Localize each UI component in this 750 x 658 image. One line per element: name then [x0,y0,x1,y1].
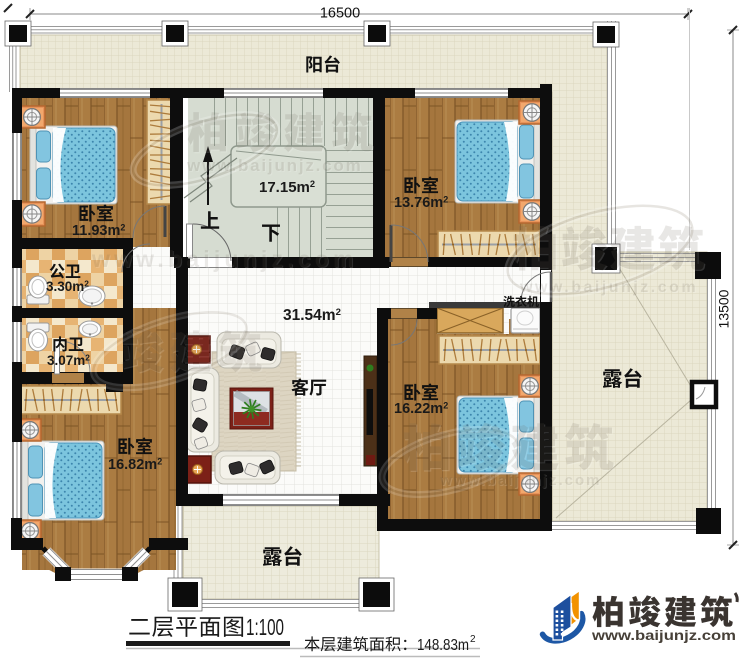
svg-text:www.baijunjz.com: www.baijunjz.com [439,472,601,489]
svg-text:2: 2 [470,634,476,645]
svg-text:13500: 13500 [716,289,732,328]
svg-text:31.54m2: 31.54m2 [283,307,341,324]
svg-text:www.baijunjz.com: www.baijunjz.com [186,156,363,175]
svg-text:148.83m: 148.83m [417,637,469,654]
svg-text:1:100: 1:100 [246,614,284,640]
svg-text:13.76m2: 13.76m2 [394,194,448,211]
svg-text:16.22m2: 16.22m2 [394,400,448,417]
svg-text:www.baijunjz.com: www.baijunjz.com [91,246,358,272]
svg-text:17.15m2: 17.15m2 [259,179,315,196]
svg-text:www.baijunjz.com: www.baijunjz.com [519,279,698,296]
svg-text:3.07m2: 3.07m2 [47,353,90,368]
svg-text:16.82m2: 16.82m2 [108,456,162,473]
svg-text:16500: 16500 [320,6,360,22]
svg-text:www.baijunjz.com: www.baijunjz.com [591,627,736,643]
svg-text:11.93m2: 11.93m2 [72,222,125,239]
svg-text:3.30m2: 3.30m2 [46,279,89,294]
